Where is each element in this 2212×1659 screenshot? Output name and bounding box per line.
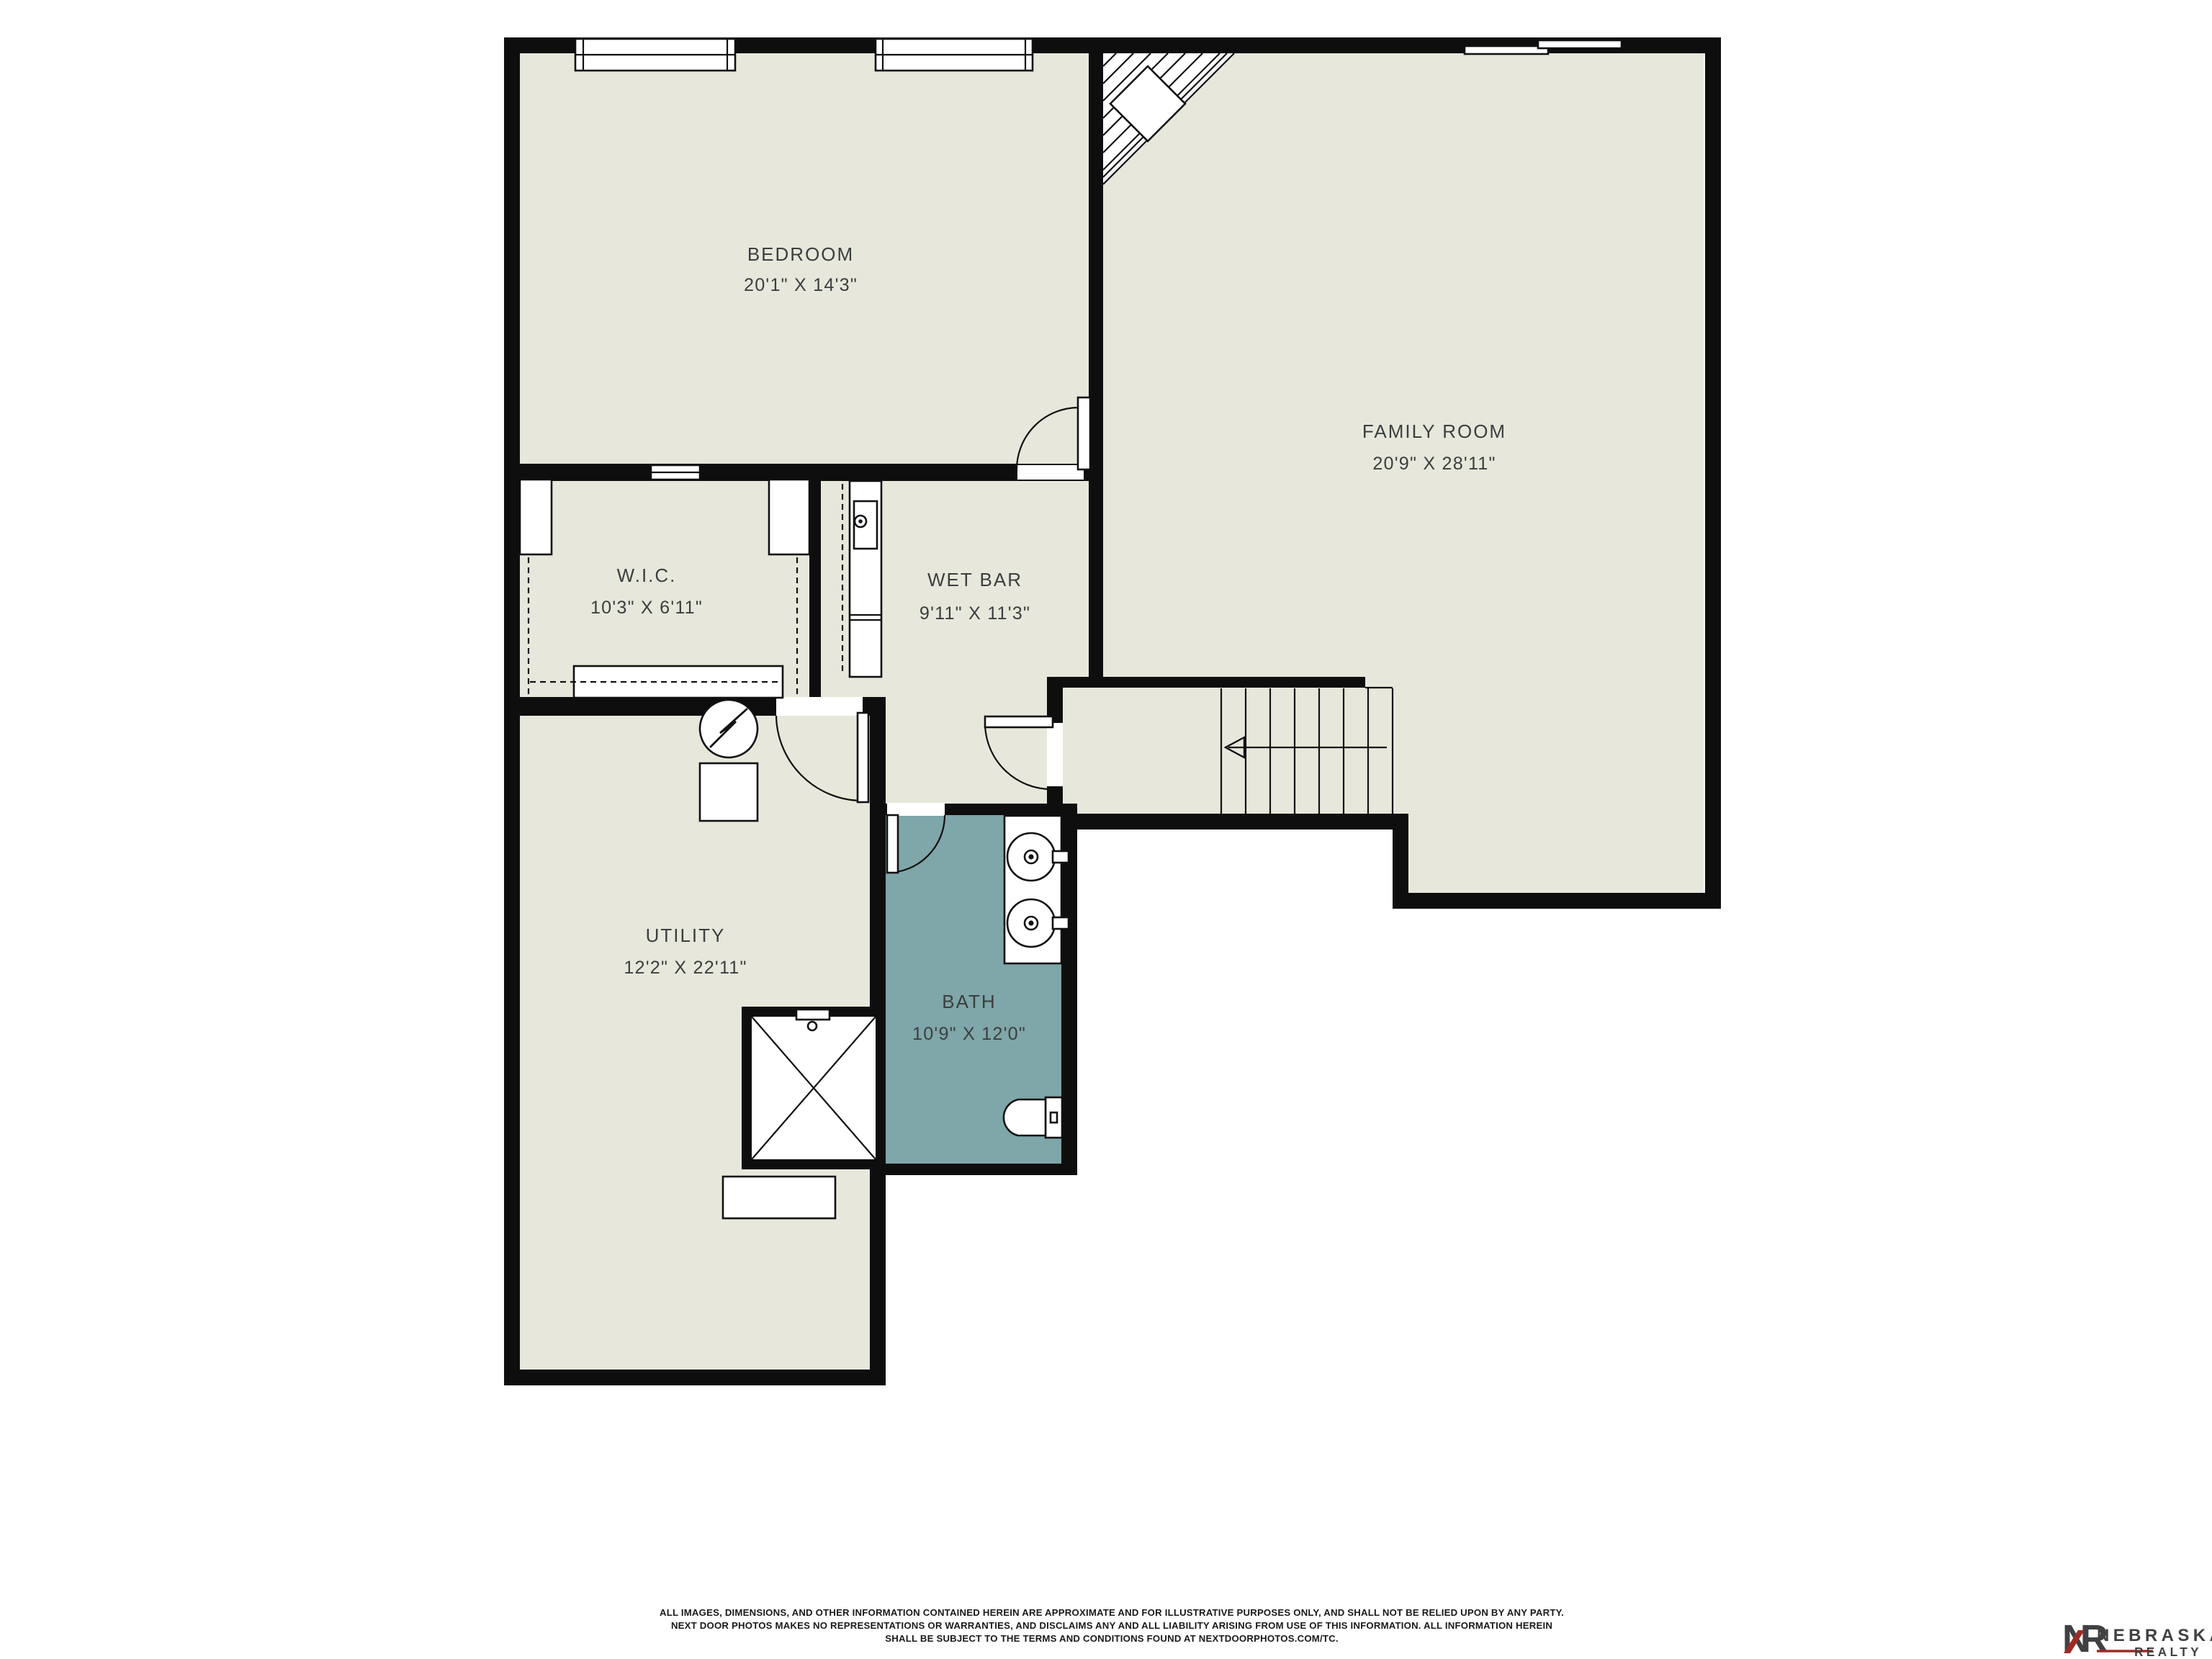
disclaimer-line-1: ALL IMAGES, DIMENSIONS, AND OTHER INFORM… <box>660 1607 1564 1618</box>
wic-shelf-left <box>520 480 552 554</box>
shower-drop-icon <box>808 1022 817 1030</box>
wall-bath-bottom <box>870 1164 1077 1175</box>
wall-bedroom-family-divider <box>1089 37 1103 687</box>
wall-stair-top <box>1047 677 1365 688</box>
wall-stair-bottom <box>1047 814 1408 829</box>
wic-floor <box>520 481 809 697</box>
wall-family-bottom <box>1393 893 1721 909</box>
family-room-label: FAMILY ROOM <box>1362 421 1506 442</box>
toilet-icon <box>1004 1097 1062 1138</box>
wetbar-faucet-dot <box>858 519 863 523</box>
wall-wic-wetbar-divider <box>809 481 821 697</box>
wet-bar-dims: 9'11" X 11'3" <box>920 603 1030 624</box>
bedroom-dims: 20'1" X 14'3" <box>744 275 858 295</box>
wic-dims: 10'3" X 6'11" <box>590 598 703 618</box>
shower-stall <box>742 1007 886 1169</box>
bath-vanity <box>1004 816 1069 963</box>
disclaimer-line-3: SHALL BE SUBJECT TO THE TERMS AND CONDIT… <box>885 1633 1338 1644</box>
disclaimer-line-2: NEXT DOOR PHOTOS MAKES NO REPRESENTATION… <box>671 1620 1552 1631</box>
brand-logo: NR NEBRASKA REALTY <box>2062 1617 2212 1659</box>
page: BEDROOM 20'1" X 14'3" FAMILY ROOM 20'9" … <box>0 0 2212 1659</box>
bath-dims: 10'9" X 12'0" <box>912 1024 1026 1044</box>
utility-dims: 12'2" X 22'11" <box>624 958 747 978</box>
utility-sink <box>723 1177 835 1218</box>
wic-bedroom-window <box>651 465 700 480</box>
wall-utility-bottom <box>504 1370 886 1385</box>
furnace-box <box>700 763 757 821</box>
wet-bar-label: WET BAR <box>927 569 1022 590</box>
utility-label: UTILITY <box>646 925 726 946</box>
faucet-icon <box>1053 917 1069 929</box>
wic-label: W.I.C. <box>617 565 677 586</box>
bedroom-window-1 <box>575 39 735 71</box>
brand-name: NEBRASKA <box>2097 1626 2212 1645</box>
wall-right <box>1705 37 1721 909</box>
floor-plan-svg: BEDROOM 20'1" X 14'3" FAMILY ROOM 20'9" … <box>0 0 2212 1659</box>
footer-disclaimer: ALL IMAGES, DIMENSIONS, AND OTHER INFORM… <box>660 1607 1564 1644</box>
brand-division: REALTY <box>2134 1645 2202 1659</box>
shower-head-icon <box>796 1010 829 1020</box>
bedroom-window-2 <box>876 39 1033 71</box>
wic-shelf-right <box>769 480 809 554</box>
bath-label: BATH <box>942 991 996 1012</box>
faucet-icon <box>1053 851 1069 863</box>
family-room-dims: 20'9" X 28'11" <box>1372 454 1496 474</box>
bedroom-label: BEDROOM <box>747 243 854 265</box>
wall-bedroom-bottom <box>504 464 1103 481</box>
